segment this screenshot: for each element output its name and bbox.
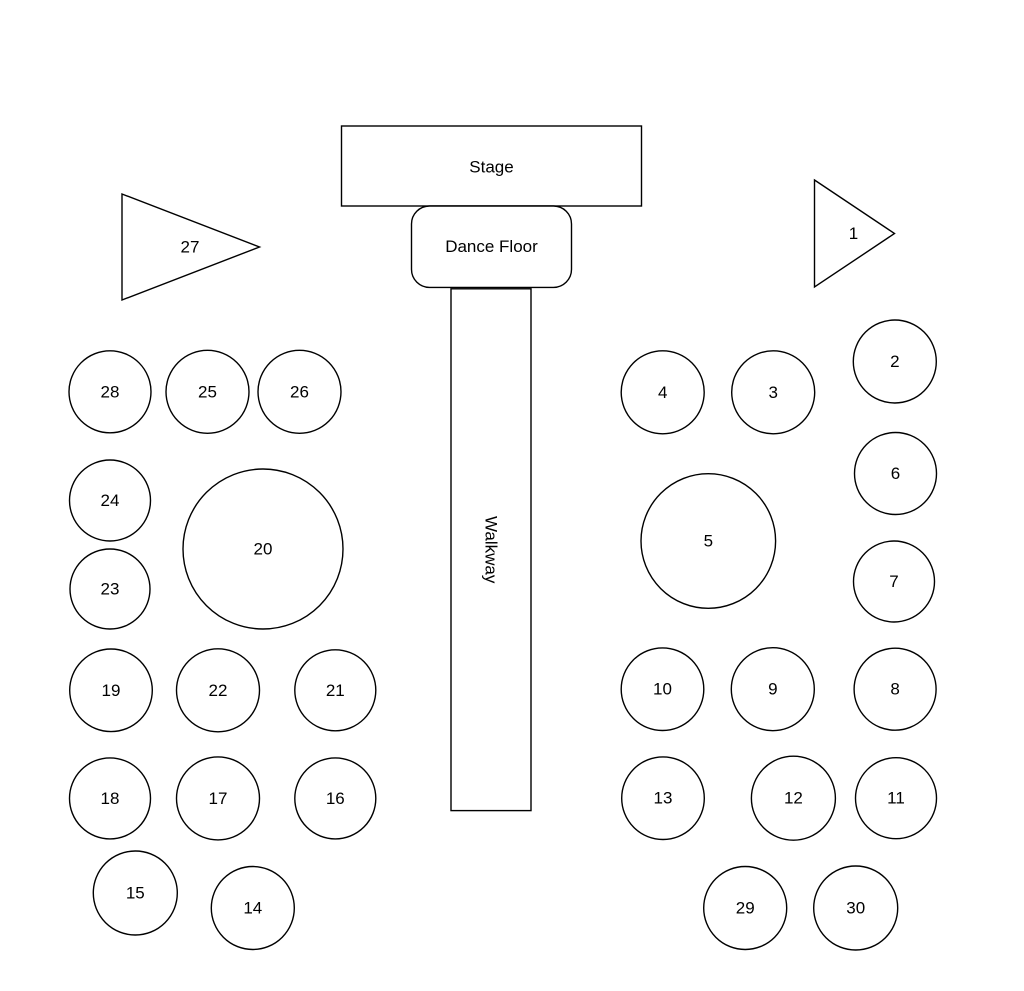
svg-text:5: 5 xyxy=(704,532,713,551)
svg-text:23: 23 xyxy=(101,580,120,599)
svg-text:20: 20 xyxy=(254,540,273,559)
svg-text:17: 17 xyxy=(209,789,228,808)
svg-text:28: 28 xyxy=(101,382,120,401)
svg-text:19: 19 xyxy=(102,681,121,700)
svg-text:10: 10 xyxy=(653,680,672,699)
svg-text:14: 14 xyxy=(243,899,262,918)
svg-text:Walkway: Walkway xyxy=(482,516,501,584)
svg-text:25: 25 xyxy=(198,382,217,401)
svg-text:16: 16 xyxy=(326,789,345,808)
svg-text:21: 21 xyxy=(326,681,345,700)
svg-text:24: 24 xyxy=(101,491,120,510)
svg-text:11: 11 xyxy=(887,789,905,808)
svg-text:18: 18 xyxy=(101,789,120,808)
svg-text:15: 15 xyxy=(126,884,145,903)
svg-text:6: 6 xyxy=(891,464,900,483)
svg-text:Stage: Stage xyxy=(469,158,513,177)
svg-text:30: 30 xyxy=(846,899,865,918)
svg-text:7: 7 xyxy=(889,572,898,591)
svg-text:4: 4 xyxy=(658,383,667,402)
svg-text:12: 12 xyxy=(784,789,803,808)
svg-text:13: 13 xyxy=(654,789,673,808)
svg-text:9: 9 xyxy=(768,680,777,699)
svg-text:1: 1 xyxy=(849,224,858,243)
svg-text:22: 22 xyxy=(209,681,228,700)
svg-text:Dance Floor: Dance Floor xyxy=(445,237,538,256)
svg-text:8: 8 xyxy=(890,680,899,699)
svg-text:26: 26 xyxy=(290,382,309,401)
svg-text:2: 2 xyxy=(890,352,899,371)
svg-text:27: 27 xyxy=(181,238,200,257)
svg-text:3: 3 xyxy=(768,383,777,402)
svg-text:29: 29 xyxy=(736,899,755,918)
